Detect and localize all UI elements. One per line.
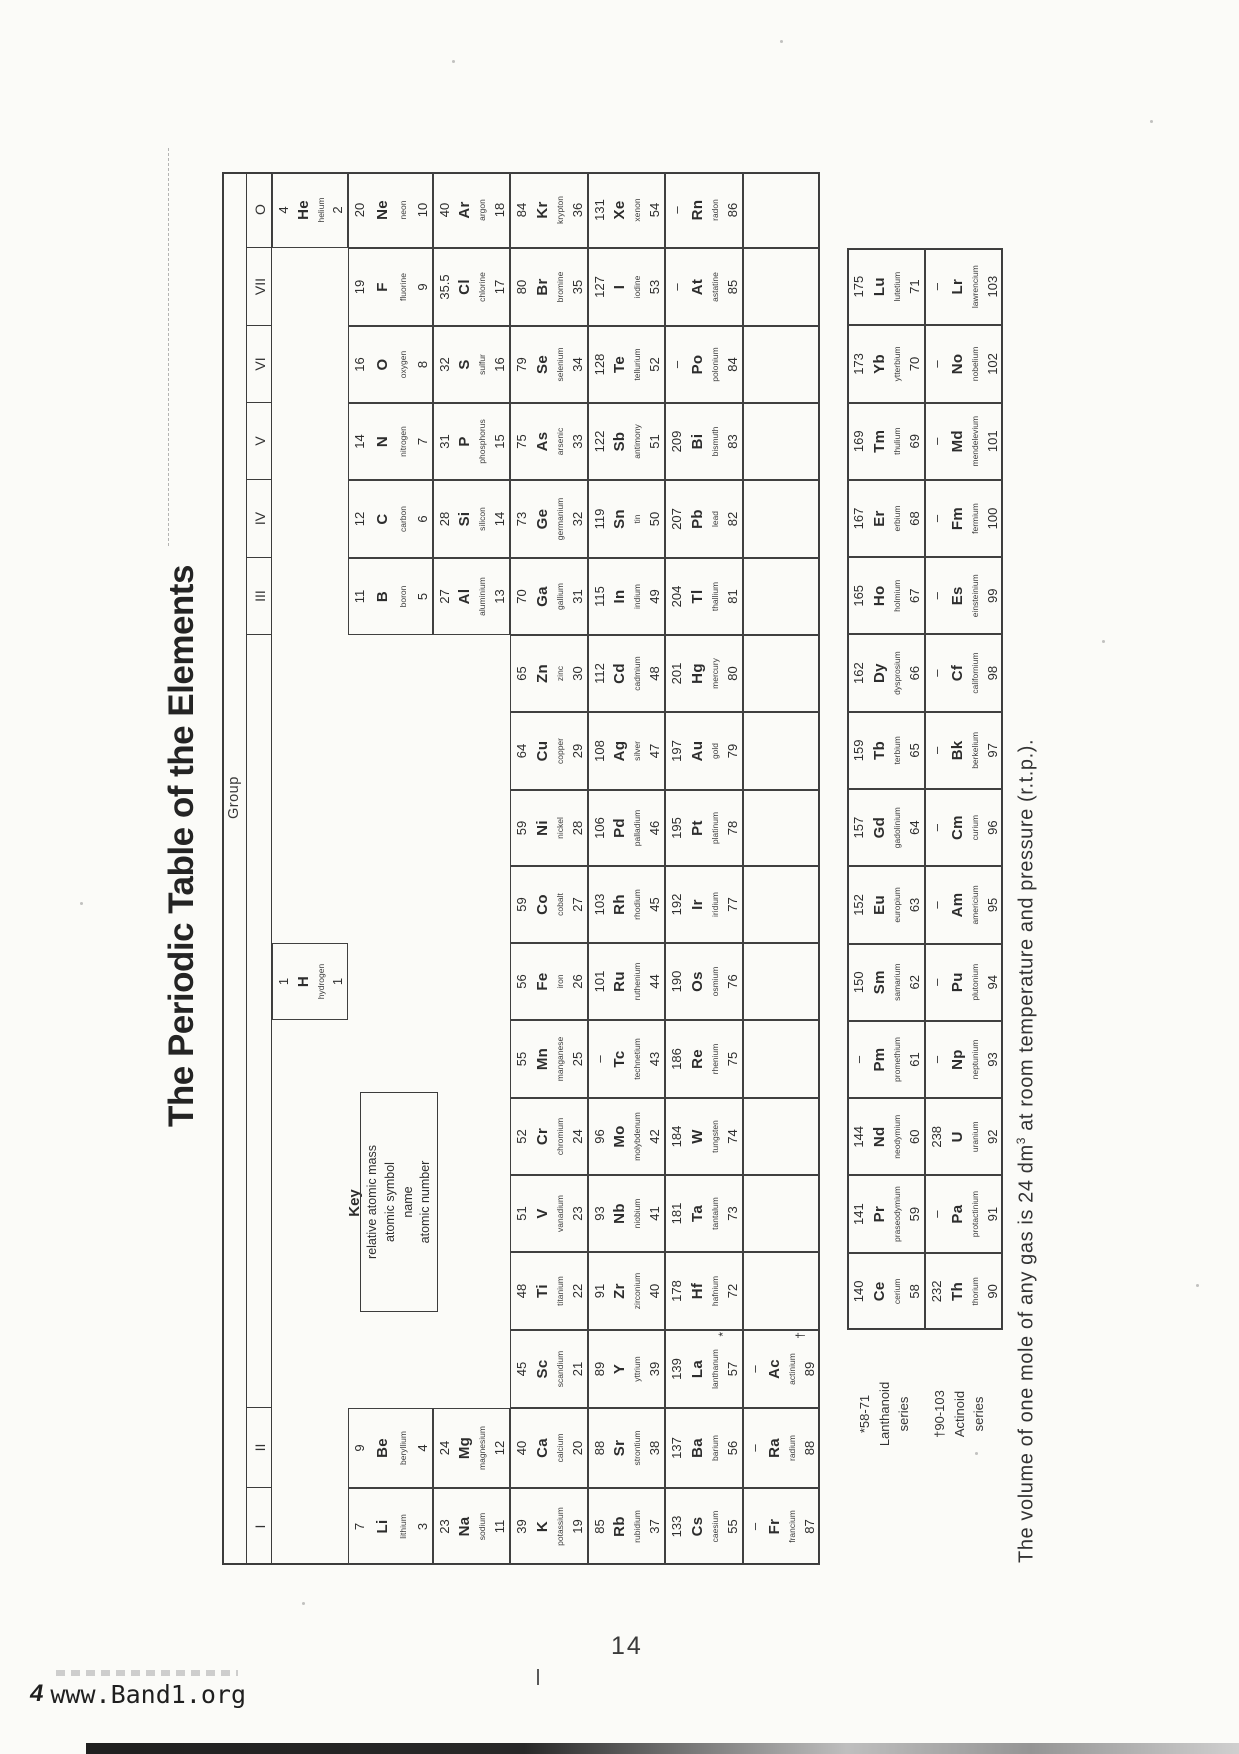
atomic-number: 99 (986, 589, 999, 603)
atomic-number: 51 (648, 434, 661, 448)
element-name: antimony (633, 424, 642, 459)
element-symbol: V (535, 1208, 550, 1218)
element-symbol: H (296, 976, 311, 987)
atomic-mass: 96 (593, 1129, 606, 1143)
element-name: cerium (893, 1279, 902, 1305)
element-name: scandium (556, 1351, 565, 1387)
element-cell-ce: 140Cecerium58 (847, 1253, 925, 1330)
element-name: nobelium (971, 347, 980, 382)
element-cell-u: 238Uuranium92 (925, 1098, 1003, 1175)
element-name: strontium (633, 1431, 642, 1466)
atomic-number: 73 (726, 1206, 739, 1220)
atomic-number: 57 (726, 1362, 739, 1376)
element-cell-he: 4Hehelium2 (272, 172, 348, 248)
element-cell-pm: –Pmpromethium61 (847, 1021, 925, 1098)
element-cell-tc: –Tctechnetium43 (588, 1020, 665, 1098)
element-name: nitrogen (399, 426, 408, 457)
element-symbol: Pt (690, 820, 705, 836)
element-cell-se: 79Seselenium34 (510, 326, 588, 403)
atomic-number: 62 (908, 975, 921, 989)
element-symbol: Mg (457, 1437, 472, 1459)
empty-cell (743, 172, 820, 248)
atomic-number: 52 (648, 357, 661, 371)
element-symbol: Po (690, 355, 705, 375)
element-name: erbium (893, 506, 902, 532)
element-symbol: Mo (612, 1125, 627, 1147)
atomic-number: 68 (908, 511, 921, 525)
element-cell-eu: 152Eueuropium63 (847, 866, 925, 943)
atomic-number: 22 (571, 1284, 584, 1298)
atomic-mass: 11 (353, 590, 366, 604)
atomic-number: 67 (908, 589, 921, 603)
element-cell-h: 1Hhydrogen1 (272, 943, 348, 1020)
element-symbol: Sm (872, 970, 887, 994)
element-symbol: Al (457, 589, 472, 605)
atomic-number: 101 (986, 430, 999, 452)
atomic-mass: 64 (515, 744, 528, 758)
element-name: thorium (971, 1277, 980, 1305)
atomic-mass: 115 (593, 586, 606, 607)
atomic-number: 5 (416, 593, 429, 600)
atomic-mass: 209 (670, 431, 683, 453)
group-header-VI: VI (247, 326, 272, 403)
atomic-mass: 19 (353, 280, 366, 294)
atomic-mass: 119 (593, 509, 606, 530)
atomic-mass: 32 (438, 357, 451, 371)
element-cell-ba: 137Babarium56 (665, 1408, 743, 1488)
atomic-number: 41 (648, 1206, 661, 1220)
group-header-band: Group (222, 172, 247, 1565)
atomic-mass: – (930, 515, 943, 522)
atomic-mass: – (748, 1444, 761, 1451)
element-name: osmium (711, 967, 720, 997)
element-symbol: Cd (612, 663, 627, 684)
atomic-mass: 127 (593, 276, 606, 298)
element-cell-np: –Npneptunium93 (925, 1021, 1003, 1098)
element-name: ruthenium (633, 963, 642, 1001)
element-name: fluorine (399, 273, 408, 301)
element-name: sulfur (478, 354, 487, 375)
element-name: einsteinium (971, 574, 980, 617)
group-header-blank (247, 635, 272, 1408)
element-cell-ir: 192Iriridium77 (665, 866, 743, 943)
empty-cell (743, 790, 820, 866)
element-symbol: Ce (872, 1281, 887, 1301)
element-cell-ne: 20Neneon10 (348, 172, 433, 248)
atomic-mass: 162 (852, 662, 865, 684)
element-symbol: Cm (950, 815, 965, 840)
atomic-number: 40 (648, 1284, 661, 1298)
element-symbol: Pa (950, 1205, 965, 1224)
element-name: potassium (556, 1507, 565, 1546)
empty-cell (743, 326, 820, 403)
atomic-mass: 137 (670, 1437, 683, 1459)
atomic-number: 103 (986, 276, 999, 298)
element-cell-cl: 35.5Clchlorine17 (433, 248, 510, 326)
element-cell-ta: 181Tatantalum73 (665, 1175, 743, 1252)
atomic-number: 25 (571, 1052, 584, 1066)
element-symbol: Au (690, 741, 705, 762)
atomic-number: 80 (726, 666, 739, 680)
scanned-document-page: The Periodic Table of the Elements Group… (0, 0, 1239, 1754)
element-cell-sn: 119Sntin50 (588, 480, 665, 558)
atomic-mass: 45 (515, 1362, 528, 1376)
element-cell-mo: 96Momolybdenum42 (588, 1098, 665, 1175)
element-name: manganese (556, 1037, 565, 1081)
atomic-mass: – (930, 747, 943, 754)
element-cell-f: 19Ffluorine9 (348, 248, 433, 326)
element-cell-rn: –Rnradon86 (665, 172, 743, 248)
element-symbol: Y (612, 1364, 627, 1374)
element-cell-ar: 40Arargon18 (433, 172, 510, 248)
element-symbol: Er (872, 510, 887, 526)
element-name: iron (556, 974, 565, 988)
atomic-number: 79 (726, 744, 739, 758)
element-symbol: Nd (872, 1127, 887, 1148)
element-name: sodium (478, 1513, 487, 1540)
atomic-mass: 59 (515, 897, 528, 911)
element-symbol: Sn (612, 509, 627, 529)
element-cell-tl: 204Tlthallium81 (665, 558, 743, 635)
atomic-number: 86 (726, 203, 739, 217)
atomic-number: 90 (986, 1284, 999, 1298)
atomic-mass: 85 (593, 1519, 606, 1533)
scan-speck (1102, 640, 1105, 643)
element-cell-te: 128Tetellurium52 (588, 326, 665, 403)
element-cell-er: 167Ererbium68 (847, 480, 925, 557)
lanthanoid-word: Lanthanoid (875, 1363, 895, 1465)
atomic-mass: 20 (353, 203, 366, 217)
element-symbol: Nb (612, 1203, 627, 1224)
atomic-mass: – (930, 592, 943, 599)
atomic-number: 29 (571, 744, 584, 758)
atomic-number: 49 (648, 589, 661, 603)
empty-cell (743, 1020, 820, 1098)
element-name: tungsten (711, 1120, 720, 1153)
atomic-number: 13 (493, 589, 506, 603)
element-cell-o: 16Ooxygen8 (348, 326, 433, 403)
atomic-mass: 157 (852, 817, 865, 839)
atomic-mass: – (930, 438, 943, 445)
atomic-number: 96 (986, 820, 999, 834)
element-cell-sr: 88Srstrontium38 (588, 1408, 665, 1488)
element-symbol: As (535, 432, 550, 452)
element-name: platinum (711, 812, 720, 844)
atomic-number: 71 (908, 279, 921, 293)
atomic-number: 97 (986, 743, 999, 757)
atomic-mass: 108 (593, 740, 606, 762)
atomic-number: 20 (571, 1441, 584, 1455)
element-name: copper (556, 738, 565, 764)
group-header-O: O (247, 172, 272, 248)
element-name: radium (788, 1435, 797, 1461)
element-symbol: Cr (535, 1128, 550, 1145)
atomic-mass: 204 (670, 586, 683, 608)
element-cell-as: 75Asarsenic33 (510, 403, 588, 480)
element-symbol: Ho (872, 586, 887, 607)
element-name: phosphorus (478, 419, 487, 463)
atomic-number: 58 (908, 1284, 921, 1298)
atomic-number: 84 (726, 357, 739, 371)
element-symbol: Ir (690, 899, 705, 910)
group-header-V: V (247, 403, 272, 480)
element-name: beryllium (399, 1431, 408, 1465)
element-name: technetium (633, 1038, 642, 1080)
element-name: neodymium (893, 1115, 902, 1159)
element-name: promethium (893, 1037, 902, 1082)
element-cell-zn: 65Znzinc30 (510, 635, 588, 712)
element-symbol: Tl (690, 590, 705, 604)
element-name: protactinium (971, 1191, 980, 1237)
atomic-mass: – (593, 1055, 606, 1062)
group-header-label: V (252, 436, 268, 445)
atomic-number: 54 (648, 203, 661, 217)
atomic-number: 7 (416, 438, 429, 445)
element-symbol: N (375, 436, 390, 447)
group-header-IV: IV (247, 480, 272, 558)
atomic-number: 88 (803, 1441, 816, 1455)
element-cell-sb: 122Sbantimony51 (588, 403, 665, 480)
atomic-mass: 139 (670, 1358, 683, 1380)
element-symbol: Te (612, 356, 627, 373)
element-name: berkelium (971, 732, 980, 769)
atomic-number: 94 (986, 975, 999, 989)
element-symbol: O (375, 359, 390, 371)
atomic-mass: 186 (670, 1048, 683, 1070)
atomic-number: 37 (648, 1519, 661, 1533)
element-name: oxygen (399, 351, 408, 378)
atomic-number: 31 (571, 589, 584, 603)
element-symbol: Sr (612, 1440, 627, 1456)
element-cell-at: –Atastatine85 (665, 248, 743, 326)
atomic-number: 61 (908, 1052, 921, 1066)
key-box: relative atomic mass atomic symbol name … (360, 1092, 438, 1312)
atomic-number: 92 (986, 1130, 999, 1144)
actinoid-series-label: †90-103 Actinoid series (930, 1363, 989, 1465)
ink-bleed-marks (56, 1670, 238, 1676)
element-name: arsenic (556, 428, 565, 455)
element-cell-mn: 55Mnmanganese25 (510, 1020, 588, 1098)
element-symbol: Gd (872, 817, 887, 838)
atomic-mass: – (670, 206, 683, 213)
element-cell-no: –Nonobelium102 (925, 325, 1003, 402)
atomic-mass: 144 (852, 1126, 865, 1148)
atomic-mass: 75 (515, 434, 528, 448)
element-symbol: At (690, 279, 705, 295)
element-symbol: Ni (535, 820, 550, 836)
element-name: aluminium (478, 577, 487, 616)
element-cell-si: 28Sisilicon14 (433, 480, 510, 558)
atomic-number: 47 (648, 744, 661, 758)
atomic-mass: 40 (515, 1441, 528, 1455)
element-cell-ho: 165Hoholmium67 (847, 557, 925, 634)
atomic-mass: 141 (852, 1203, 865, 1225)
element-cell-k: 39Kpotassium19 (510, 1488, 588, 1565)
element-cell-es: –Eseinsteinium99 (925, 557, 1003, 634)
element-cell-rb: 85Rbrubidium37 (588, 1488, 665, 1565)
element-name: lead (711, 511, 720, 527)
element-symbol: Pb (690, 509, 705, 529)
element-symbol: W (690, 1129, 705, 1143)
atomic-mass: 169 (852, 430, 865, 452)
atomic-number: 65 (908, 743, 921, 757)
element-name: palladium (633, 810, 642, 846)
element-symbol: La (690, 1360, 705, 1378)
atomic-number: 24 (571, 1129, 584, 1143)
page-title: The Periodic Table of the Elements (164, 583, 201, 1127)
element-cell-ca: 40Cacalcium20 (510, 1408, 588, 1488)
element-name: actinium (788, 1353, 797, 1385)
atomic-number: 50 (648, 512, 661, 526)
atomic-number: 78 (726, 821, 739, 835)
element-symbol: Os (690, 971, 705, 992)
atomic-number: 35 (571, 280, 584, 294)
empty-cell (743, 558, 820, 635)
element-cell-am: –Amamericium95 (925, 866, 1003, 943)
series-marker: * (717, 1332, 729, 1337)
element-cell-fe: 56Feiron26 (510, 943, 588, 1020)
element-cell-cu: 64Cucopper29 (510, 712, 588, 790)
element-name: argon (478, 199, 487, 221)
element-name: silver (633, 741, 642, 761)
element-symbol: Dy (872, 663, 887, 683)
element-cell-lu: 175Lulutetium71 (847, 248, 925, 325)
atomic-mass: 150 (852, 971, 865, 993)
element-name: cadmium (633, 656, 642, 690)
element-symbol: Bk (950, 740, 965, 760)
element-name: thulium (893, 428, 902, 455)
element-cell-md: –Mdmendelevium101 (925, 403, 1003, 480)
element-cell-dy: 162Dydysprosium66 (847, 634, 925, 711)
atomic-mass: – (748, 1523, 761, 1530)
element-name: mendelevium (971, 416, 980, 467)
atomic-mass: – (930, 283, 943, 290)
element-symbol: S (457, 359, 472, 369)
element-symbol: Na (457, 1517, 472, 1537)
atomic-mass: 192 (670, 894, 683, 916)
element-name: fermium (971, 503, 980, 534)
element-cell-fm: –Fmfermium100 (925, 480, 1003, 557)
atomic-mass: 101 (593, 971, 606, 993)
element-symbol: Si (457, 512, 472, 527)
element-name: iridium (711, 892, 720, 917)
element-name: francium (788, 1510, 797, 1543)
element-name: samarium (893, 964, 902, 1001)
series-marker: † (794, 1332, 806, 1339)
atomic-number: 102 (986, 353, 999, 375)
actinoid-series-word: series (969, 1363, 989, 1465)
atomic-mass: 195 (670, 817, 683, 839)
atomic-number: 87 (803, 1519, 816, 1533)
atomic-mass: 112 (593, 663, 606, 684)
group-header-II: II (247, 1408, 272, 1488)
element-cell-yb: 173Ybytterbium70 (847, 325, 925, 402)
element-name: hafnium (711, 1276, 720, 1306)
atomic-number: 21 (571, 1362, 584, 1376)
element-symbol: B (375, 591, 390, 602)
element-name: krypton (556, 196, 565, 224)
empty-cell (743, 248, 820, 326)
element-symbol: Lu (872, 277, 887, 296)
atomic-mass: 9 (353, 1444, 366, 1451)
scan-speck (1196, 1284, 1199, 1287)
atomic-mass: 207 (670, 508, 683, 530)
footer-mark: 4 (28, 1680, 46, 1708)
element-name: cobalt (556, 893, 565, 916)
empty-cell (743, 403, 820, 480)
element-name: tellurium (633, 348, 642, 380)
atomic-mass: – (748, 1365, 761, 1372)
lanthanoid-series-label: *58-71 Lanthanoid series (855, 1363, 914, 1465)
element-symbol: Ti (535, 1284, 550, 1298)
atomic-mass: 16 (353, 357, 366, 371)
atomic-number: 17 (493, 280, 506, 294)
element-symbol: Fe (535, 972, 550, 990)
atomic-number: 98 (986, 666, 999, 680)
atomic-mass: 122 (593, 431, 606, 453)
element-cell-ru: 101Ruruthenium44 (588, 943, 665, 1020)
atomic-mass: – (930, 979, 943, 986)
atomic-mass: – (930, 1210, 943, 1217)
atomic-mass: 232 (930, 1281, 943, 1303)
empty-cell (743, 1098, 820, 1175)
atomic-number: 77 (726, 897, 739, 911)
element-name: terbium (893, 736, 902, 764)
atomic-number: 14 (493, 512, 506, 526)
atomic-mass: – (930, 1056, 943, 1063)
atomic-mass: 35.5 (438, 274, 451, 299)
element-cell-li: 7Lilithium3 (348, 1488, 433, 1565)
element-symbol: Sc (535, 1360, 550, 1379)
scan-speck (1150, 120, 1153, 123)
atomic-mass: 40 (438, 203, 451, 217)
element-symbol: I (612, 285, 627, 289)
element-symbol: Np (950, 1049, 965, 1070)
scan-speck (302, 1602, 305, 1605)
element-cell-i: 127Iiodine53 (588, 248, 665, 326)
atomic-mass: – (930, 360, 943, 367)
atomic-number: 60 (908, 1130, 921, 1144)
atomic-mass: 80 (515, 280, 528, 294)
atomic-number: 26 (571, 974, 584, 988)
scan-speck (780, 40, 783, 43)
empty-cell (743, 635, 820, 712)
footnote-text: The volume of one mole of any gas is 24 … (1016, 1144, 1038, 1563)
atomic-number: 74 (726, 1129, 739, 1143)
element-name: calcium (556, 1434, 565, 1463)
atomic-mass: 79 (515, 357, 528, 371)
element-name: lawrencium (971, 265, 980, 308)
element-name: thallium (711, 582, 720, 611)
scan-speck (452, 60, 455, 63)
atomic-mass: 31 (438, 434, 451, 448)
element-symbol: Ra (767, 1438, 782, 1458)
group-header-label: III (252, 590, 268, 602)
element-name: rhodium (633, 889, 642, 920)
group-header-III: III (247, 558, 272, 635)
atomic-number: 53 (648, 280, 661, 294)
atomic-mass: 103 (593, 894, 606, 916)
element-symbol: Ru (612, 971, 627, 992)
atomic-number: 91 (986, 1207, 999, 1221)
element-symbol: Tb (872, 741, 887, 760)
atomic-mass: 23 (438, 1519, 451, 1533)
key-line-mass: relative atomic mass (366, 1145, 379, 1259)
element-cell-kr: 84Krkrypton36 (510, 172, 588, 248)
element-symbol: Rn (690, 200, 705, 221)
element-symbol: Pr (872, 1206, 887, 1222)
element-cell-be: 9Beberyllium4 (348, 1408, 433, 1488)
